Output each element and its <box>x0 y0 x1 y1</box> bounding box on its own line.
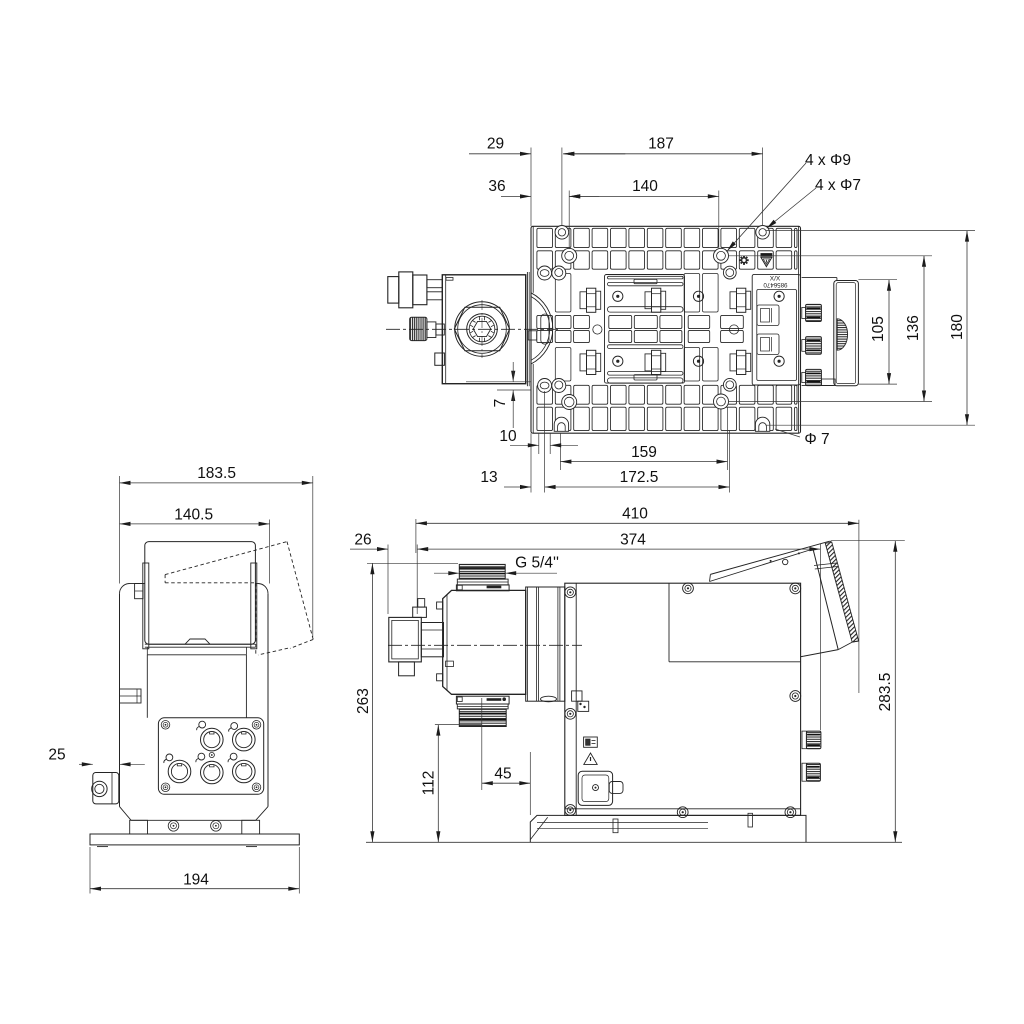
svg-text:26: 26 <box>354 531 371 548</box>
svg-text:180: 180 <box>949 314 966 340</box>
svg-text:172.5: 172.5 <box>620 469 659 486</box>
svg-text:263: 263 <box>355 688 372 714</box>
svg-text:Φ 7: Φ 7 <box>804 431 829 448</box>
svg-text:140: 140 <box>632 178 658 195</box>
svg-text:4 x Φ7: 4 x Φ7 <box>815 177 861 194</box>
svg-text:136: 136 <box>905 315 922 341</box>
svg-text:45: 45 <box>494 765 511 782</box>
svg-text:29: 29 <box>487 136 504 153</box>
svg-text:13: 13 <box>480 469 497 486</box>
svg-text:G 5/4'': G 5/4'' <box>515 554 559 571</box>
svg-text:112: 112 <box>421 771 438 796</box>
svg-text:9856470: 9856470 <box>763 281 788 288</box>
svg-text:140.5: 140.5 <box>174 506 213 523</box>
svg-text:4 x Φ9: 4 x Φ9 <box>805 152 851 169</box>
svg-text:36: 36 <box>488 178 505 195</box>
svg-text:194: 194 <box>183 872 209 889</box>
svg-text:105: 105 <box>870 316 887 342</box>
svg-text:10: 10 <box>499 428 517 445</box>
svg-text:374: 374 <box>620 531 646 548</box>
svg-text:187: 187 <box>648 136 674 153</box>
svg-text:25: 25 <box>48 747 65 764</box>
svg-text:283.5: 283.5 <box>877 673 894 712</box>
svg-text:410: 410 <box>622 506 648 523</box>
svg-text:7: 7 <box>492 399 509 408</box>
svg-text:183.5: 183.5 <box>197 465 236 482</box>
svg-text:159: 159 <box>631 444 657 461</box>
